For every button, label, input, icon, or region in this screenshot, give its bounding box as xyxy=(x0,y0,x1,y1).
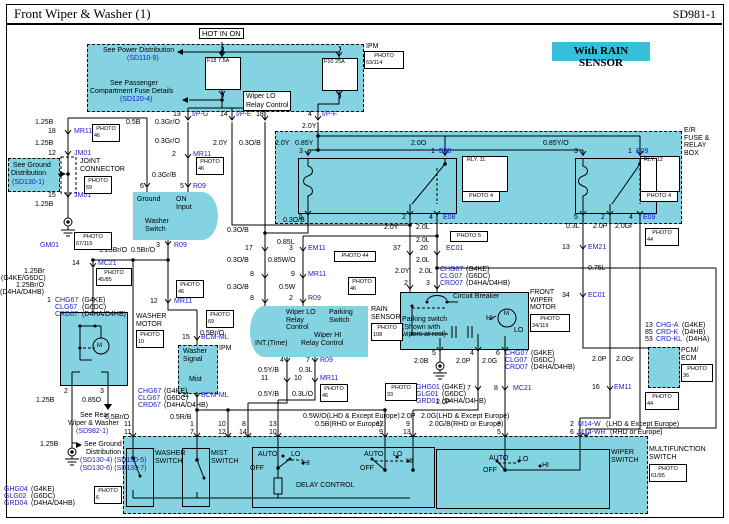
diagram-label: 5 xyxy=(574,214,578,222)
diagram-label: 15 xyxy=(182,334,190,342)
connector-ref-label: MR11 xyxy=(308,271,326,279)
connector-ref-label: EM11 xyxy=(614,384,632,392)
diagram-label: RLY. 12 xyxy=(644,157,663,164)
diagram-label: WIPER SWITCH xyxy=(611,449,639,464)
diagram-label: 14 xyxy=(239,429,247,437)
diagram-label: 0.5Y/B xyxy=(258,391,279,399)
diagram-label: FRONT WIPER MOTOR xyxy=(530,289,556,312)
diagram-label: 0.3L xyxy=(299,367,313,375)
diagram-label: LO xyxy=(519,456,528,464)
diagram-label: 0.75L xyxy=(588,265,606,273)
diagram-label: PCM/ ECM xyxy=(681,347,699,362)
diagram-label: (D4HA/D4HB) xyxy=(82,311,126,319)
connector-ref-label: R09 xyxy=(308,295,321,303)
labels-layer: HOT IN ONSee Power Distribution(SD110-9)… xyxy=(0,0,729,524)
diagram-label: Ground xyxy=(137,196,160,204)
diagram-label: 3 xyxy=(426,280,430,288)
diagram-label: 10 xyxy=(294,375,302,383)
diagram-label: 20 xyxy=(420,245,428,253)
diagram-label: 13 xyxy=(173,111,181,119)
wiper-lo-relay-outline xyxy=(298,158,457,214)
diagram-label: 12 xyxy=(48,150,56,158)
diagram-label: 3 xyxy=(299,148,303,156)
photo-ref-box: PHOTO69 xyxy=(206,310,234,328)
connector-ref-label: EC01 xyxy=(588,292,606,300)
diagram-label: (D4HA/D4HB) xyxy=(31,500,75,508)
diagram-label: WASHER SWITCH xyxy=(155,450,185,465)
diagram-label: 14 xyxy=(72,260,80,268)
connector-ref-label: (SD130-4) (SD130-5) xyxy=(80,457,147,465)
connector-ref-label: (SD120-4) xyxy=(120,96,152,104)
diagram-label: 13 xyxy=(562,244,570,252)
diagram-label: RAIN SENSOR xyxy=(371,306,401,321)
diagram-label: 7 xyxy=(190,429,194,437)
diagram-label: 4 xyxy=(629,214,633,222)
diagram-label: 7 xyxy=(306,357,310,365)
diagram-label: (LHD & Except Europe) xyxy=(606,421,679,429)
connector-ref-label: CRD07 xyxy=(440,280,463,288)
diagram-label: 53 xyxy=(645,336,653,344)
diagram-label: 16 xyxy=(592,384,600,392)
diagram-label: AUTO xyxy=(258,451,277,459)
diagram-label: Circuit Breaker xyxy=(453,293,499,301)
connector-ref-label: M14-W xyxy=(578,421,601,429)
diagram-label: Wiper LO Relay Control xyxy=(286,309,316,332)
diagram-label: 2.0G/B(RHD or Europe) xyxy=(429,421,503,429)
diagram-label: 2.0L xyxy=(416,237,430,245)
connector-ref-label: I/P-E xyxy=(236,111,252,119)
diagram-label: 0.3O/B xyxy=(227,284,249,292)
diagram-label: 6 xyxy=(140,183,144,191)
diagram-label: 0.85Y/O xyxy=(543,140,569,148)
diagram-label: 5 xyxy=(432,350,436,358)
diagram-label: 1 xyxy=(190,421,194,429)
photo-ref-box: PHOTO45/85 xyxy=(96,268,132,286)
diagram-label: 2.0Y xyxy=(213,140,227,148)
diagram-label: (D4HA/D4HB) xyxy=(466,280,510,288)
diagram-label: 1 xyxy=(431,148,435,156)
photo-ref-box: PHOTO36 xyxy=(681,364,713,382)
diagram-label: E/R FUSE & RELAY BOX xyxy=(684,127,709,157)
photo-ref-box: PHOTO46 xyxy=(176,280,204,298)
connector-ref-label: E09 xyxy=(636,148,648,156)
diagram-label: 2.0Y xyxy=(302,123,316,131)
connector-ref-label: CRD67 xyxy=(138,402,161,410)
photo-ref-box: PHOTO108 xyxy=(371,323,403,341)
connector-ref-label: (SD130-6) (SD130-7) xyxy=(80,465,147,473)
diagram-label: 0.5R/B xyxy=(170,414,191,422)
connector-ref-label: CRD67 xyxy=(55,311,78,319)
diagram-label: OFF xyxy=(483,467,497,475)
diagram-label: 2.0P xyxy=(593,223,607,231)
photo-ref-box: PHOTO63/114 xyxy=(364,51,404,69)
diagram-label: 15 xyxy=(48,192,56,200)
diagram-label: LO xyxy=(393,451,402,459)
diagram-label: 2.0O xyxy=(411,140,426,148)
connector-ref-label: MC21 xyxy=(513,385,532,393)
diagram-label: 2.0B xyxy=(414,358,428,366)
connector-ref-label: EC01 xyxy=(446,245,464,253)
diagram-label: 2 xyxy=(402,214,406,222)
connector-ref-label: EM11 xyxy=(308,245,326,253)
diagram-label: Parking switch (Shown with wipers at res… xyxy=(402,316,447,339)
diagram-label: HOT IN ON xyxy=(199,28,244,39)
diagram-label: F18 7.5A xyxy=(207,58,229,65)
diagram-label: JOINT CONNECTOR xyxy=(80,158,125,173)
connector-ref-label: MC21 xyxy=(98,260,117,268)
diagram-label: 17 xyxy=(245,245,253,253)
photo-ref-box: PHOTO 5 xyxy=(450,231,488,242)
connector-ref-label: I/P-G xyxy=(192,111,208,119)
diagram-label: 1.25B xyxy=(35,119,53,127)
diagram-label: 2.0G(LHD & Except Europe) xyxy=(421,413,509,421)
connector-ref-label: (SD110-9) xyxy=(127,55,159,63)
connector-ref-label: R09 xyxy=(193,183,206,191)
diagram-label: 0.85W/O xyxy=(268,257,296,265)
diagram-label: 2.0P xyxy=(401,413,415,421)
diagram-label: 2.0Y xyxy=(384,224,398,232)
diagram-label: Relay Control xyxy=(301,340,343,348)
diagram-label: 5 xyxy=(497,429,501,437)
diagram-label: RLY. 11 xyxy=(467,157,485,164)
diagram-label: 8 xyxy=(494,385,498,393)
diagram-label: 7 xyxy=(467,385,471,393)
photo-ref-box: PHOTO 4 xyxy=(462,191,500,202)
diagram-label: HI xyxy=(303,460,310,468)
photo-ref-box: PHOTO61/95 xyxy=(649,464,687,482)
photo-ref-box: PHOTO44 xyxy=(645,228,679,246)
diagram-label: 9 xyxy=(291,271,295,279)
diagram-label: 0.3L/O xyxy=(292,391,313,399)
photo-ref-box: PHOTO10 xyxy=(136,330,164,348)
diagram-label: See Power Distribution xyxy=(103,47,174,55)
diagram-label: 0.3Gr/O xyxy=(155,119,180,127)
diagram-label: 2.0G xyxy=(482,358,497,366)
diagram-label: 2 xyxy=(289,295,293,303)
diagram-label: 1.25B xyxy=(40,441,58,449)
connector-ref-label: E08 xyxy=(443,214,455,222)
diagram-label: 10 xyxy=(269,429,277,437)
diagram-label: 0.3L xyxy=(566,223,580,231)
connector-ref-label: MR11 xyxy=(74,128,92,136)
connector-ref-label: R09 xyxy=(320,357,333,365)
diagram-label: 0.3O/B xyxy=(239,140,261,148)
connector-ref-label: BCM-ML xyxy=(201,334,229,342)
diagram-label: 34 xyxy=(562,292,570,300)
diagram-label: F10 25A xyxy=(324,59,345,66)
photo-ref-box: PHOTO69 xyxy=(84,176,112,194)
diagram-label: OFF xyxy=(360,465,374,473)
connector-ref-label: E08 xyxy=(439,148,451,156)
diagram-label: 1 xyxy=(47,297,51,305)
diagram-label: 0.85O xyxy=(82,397,101,405)
diagram-label: 0.5B xyxy=(126,119,140,127)
diagram-label: 13 xyxy=(403,429,411,437)
diagram-label: 4 xyxy=(280,357,284,365)
diagram-label: 8 xyxy=(250,271,254,279)
diagram-label: 2.0L xyxy=(416,224,430,232)
diagram-label: 6 xyxy=(570,429,574,437)
diagram-label: 8 xyxy=(242,421,246,429)
diagram-label: 14 xyxy=(220,111,228,119)
diagram-label: Parking Switch xyxy=(329,309,353,324)
diagram-label: 37 xyxy=(393,245,401,253)
connector-ref-label: CRD07 xyxy=(505,364,528,372)
diagram-label: 2.0Gr xyxy=(615,223,633,231)
connector-ref-label: R09 xyxy=(174,242,187,250)
photo-ref-box: PHOTO 4 xyxy=(640,191,678,202)
connector-ref-label: JM01 xyxy=(74,150,91,158)
diagram-label: MIST SWITCH xyxy=(211,450,239,465)
diagram-label: 2 xyxy=(601,214,605,222)
diagram-label: 1 xyxy=(628,148,632,156)
diagram-label: ON Input xyxy=(176,196,192,211)
diagram-label: LO xyxy=(514,327,523,335)
diagram-label: 2.0P xyxy=(456,358,470,366)
connector-ref-label: I/P-F xyxy=(322,111,337,119)
photo-ref-box: PHOTO34/119 xyxy=(530,314,570,332)
diagram-label: 2 xyxy=(172,151,176,159)
diagram-label: 0.5W/O(LHD & Except Europe) xyxy=(303,413,400,421)
diagram-label: 9 xyxy=(379,429,383,437)
diagram-label: 18 xyxy=(256,111,264,119)
diagram-label: 11 xyxy=(124,421,131,429)
diagram-label: IPM xyxy=(219,345,231,353)
connector-ref-label: BCM-ML xyxy=(201,392,229,400)
diagram-label: 3 xyxy=(497,421,501,429)
diagram-label: 2.0Y xyxy=(395,268,409,276)
diagram-label: 2.0L xyxy=(419,268,433,276)
diagram-label: 0.3O/B xyxy=(227,257,249,265)
photo-ref-box: PHOTO46 xyxy=(320,384,348,402)
diagram-label: 11 xyxy=(261,375,268,383)
mist-switch-outline xyxy=(182,448,210,507)
diagram-label: Distribution xyxy=(11,170,46,178)
photo-ref-box: PHOTO46 xyxy=(92,124,120,142)
diagram-label: 9 xyxy=(406,421,410,429)
connector-ref-label: EM21 xyxy=(588,244,606,252)
diagram-label: HI xyxy=(406,458,413,466)
diagram-label: 1.25B xyxy=(35,140,53,148)
photo-ref-box: PHOTO44 xyxy=(645,392,679,410)
photo-ref-box: PHOTO67/115 xyxy=(74,232,112,250)
diagram-label: 2.0Gr xyxy=(616,356,634,364)
photo-ref-box: PHOTO6 xyxy=(94,486,122,504)
diagram-label: (D4HA/D4HB) xyxy=(164,402,208,410)
wiper-hi-relay-outline xyxy=(575,158,657,214)
diagram-label: 0.3O/B xyxy=(283,217,305,225)
diagram-label: Distribution xyxy=(86,449,121,457)
connector-ref-label: (SD982-1) xyxy=(76,428,108,436)
diagram-label: (D4HA/D4HB) xyxy=(0,289,44,297)
diagram-label: 4 xyxy=(470,350,474,358)
photo-ref-box: PHOTO33 xyxy=(385,383,417,401)
diagram-label: 2 xyxy=(570,421,574,429)
diagram-label: 11 xyxy=(182,392,189,400)
diagram-label: 11 xyxy=(124,429,131,437)
photo-ref-box: PHOTO 44 xyxy=(334,251,376,262)
diagram-label: 2 xyxy=(404,280,408,288)
diagram-label: 2.0Y xyxy=(275,140,289,148)
diagram-label: 0.3Gr/O xyxy=(155,138,180,146)
diagram-label: 2.0L xyxy=(416,257,430,265)
diagram-label: 12 xyxy=(218,429,226,437)
diagram-label: OFF xyxy=(250,465,264,473)
diagram-label: See Passenger xyxy=(110,80,158,88)
diagram-label: MULTIFUNCTION SWITCH xyxy=(649,446,706,461)
diagram-label: 3 xyxy=(289,245,293,253)
photo-ref-box: PHOTO46 xyxy=(196,157,224,175)
diagram-label: 0.3O/B xyxy=(227,227,249,235)
connector-ref-label: E09 xyxy=(643,214,655,222)
diagram-label: 10 xyxy=(218,421,226,429)
diagram-label: 3 xyxy=(156,242,160,250)
diagram-label: AUTO xyxy=(364,451,383,459)
diagram-label: 4 xyxy=(429,214,433,222)
diagram-label: See Ground xyxy=(84,441,122,449)
diagram-label: Wiper LO Relay Control xyxy=(243,91,291,111)
diagram-label: HI xyxy=(542,462,549,470)
connector-ref-label: M14-WR xyxy=(578,429,606,437)
diagram-label: (D4HA) xyxy=(686,336,709,344)
diagram-label: AUTO xyxy=(489,455,508,463)
diagram-label: DELAY CONTROL xyxy=(296,482,354,490)
photo-ref-box: PHOTO46 xyxy=(348,277,376,295)
diagram-label: Washer Switch xyxy=(145,218,169,233)
diagram-label: 2 xyxy=(64,388,68,396)
diagram-label: Compartment Fuse Details xyxy=(90,88,173,96)
diagram-label: 13 xyxy=(269,421,277,429)
connector-ref-label: GM01 xyxy=(40,242,59,250)
diagram-label: 5 xyxy=(180,183,184,191)
diagram-label: 4 xyxy=(308,111,312,119)
diagram-label: 12 xyxy=(150,298,158,306)
diagram-label: IPM xyxy=(366,43,378,51)
diagram-label: INT.(Time) xyxy=(255,340,287,348)
diagram-label: 0.5W xyxy=(279,284,295,292)
diagram-label: 0.5Y/B xyxy=(258,367,279,375)
wiper-switch-lhd-outline xyxy=(252,447,435,508)
diagram-label: 0.5B(RHD or Europe) xyxy=(315,421,382,429)
diagram-label: (D4HA/D4HB) xyxy=(531,364,575,372)
diagram-label: 0.5Br/O xyxy=(131,247,155,255)
diagram-label: Mist xyxy=(189,376,202,384)
connector-ref-label: CRD-KL xyxy=(656,336,682,344)
diagram-label: 1.25B xyxy=(35,201,53,209)
diagram-label: 3 xyxy=(574,148,578,156)
diagram-label: M xyxy=(97,343,102,351)
diagram-label: See Ground xyxy=(13,162,51,170)
wiring-diagram-page: Front Wiper & Washer (1) SD981-1 With RA… xyxy=(0,0,729,524)
diagram-label: LO xyxy=(291,451,300,459)
diagram-label: WASHER MOTOR xyxy=(136,313,166,328)
diagram-label: 1.25B xyxy=(36,397,54,405)
diagram-label: 0.85Y xyxy=(295,140,313,148)
connector-ref-label: GRD04 xyxy=(4,500,27,508)
diagram-label: 12 xyxy=(376,421,384,429)
diagram-label: Washer Signal xyxy=(183,348,207,363)
diagram-label: 2.0P xyxy=(436,399,450,407)
connector-ref-label: MR11 xyxy=(320,375,338,383)
diagram-label: HI xyxy=(486,315,493,323)
diagram-label: M xyxy=(504,311,509,319)
diagram-label: 18 xyxy=(48,128,56,136)
connector-ref-label: MR11 xyxy=(174,298,192,306)
diagram-label: 3 xyxy=(100,388,104,396)
diagram-label: 6 xyxy=(496,350,500,358)
diagram-label: 8 xyxy=(250,295,254,303)
connector-ref-label: (SD130-1) xyxy=(12,179,44,187)
diagram-label: (RHD or Europe) xyxy=(610,429,663,437)
diagram-label: 2.0P xyxy=(592,356,606,364)
diagram-label: Wiper HI xyxy=(314,332,341,340)
diagram-label: 0.3Gr/B xyxy=(152,172,176,180)
